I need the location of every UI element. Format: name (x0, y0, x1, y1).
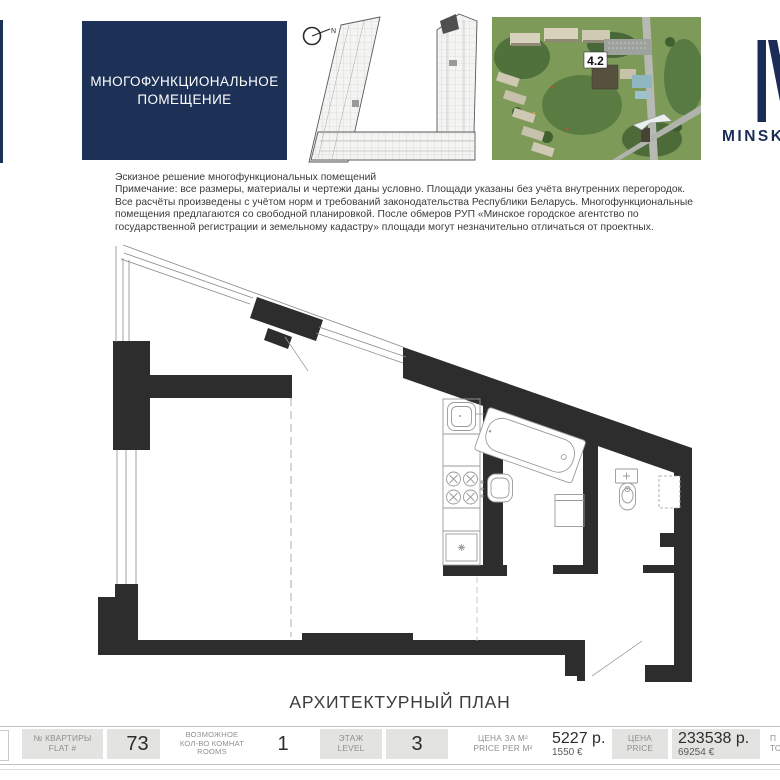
kitchen-fixtures (443, 399, 484, 565)
disclaimer-notes: Эскизное решение многофункциональных пом… (115, 172, 680, 234)
aerial-site-view: 4.2 (492, 17, 701, 160)
premises-title-line2: ПОМЕЩЕНИЕ (137, 91, 231, 109)
minsk-world-logo-icon (740, 20, 780, 130)
left-clipped-cell (0, 730, 9, 761)
rooms-count: 1 (277, 733, 288, 756)
floor-plan-drawing (90, 240, 710, 690)
notes-line: Примечание: все размеры, материалы и чер… (115, 184, 680, 196)
site-badge: 4.2 (584, 52, 607, 68)
rooms-label-en: ROOMS (197, 748, 227, 757)
price-label-en: PRICE (627, 744, 653, 754)
window-lines (116, 245, 406, 584)
toilet (616, 469, 638, 510)
stove-burners (447, 472, 478, 504)
flat-number-value: 73 (107, 729, 168, 759)
price-per-m2-eur: 1550 € (552, 747, 583, 759)
premises-title-box: МНОГОФУНКЦИОНАЛЬНОЕ ПОМЕЩЕНИЕ (82, 21, 287, 160)
flat-number: 73 (126, 733, 148, 756)
site-badge-label: 4.2 (587, 54, 604, 68)
walls (98, 297, 692, 682)
shaft-duct (659, 476, 680, 508)
level-label-en: LEVEL (338, 744, 365, 754)
right-clipped-label2: ТО (770, 744, 780, 754)
level-value: 3 (386, 729, 448, 759)
washing-machine (555, 495, 584, 527)
price-value: 233538 р. 69254 € (672, 729, 760, 759)
rooms-value: 1 (263, 729, 303, 759)
flat-number-label-en: FLAT # (49, 744, 77, 754)
price-per-m2-label: ЦЕНА ЗА М² PRICE PER M² (457, 729, 549, 759)
price-byn: 233538 р. (678, 730, 749, 747)
notes-line: Эскизное решение многофункциональных пом… (115, 172, 680, 184)
building-key-plan: N (298, 12, 488, 167)
flat-number-label: № КВАРТИРЫ FLAT # (22, 729, 103, 759)
price-eur: 69254 € (678, 747, 714, 759)
footer-bar-shadow-line (0, 769, 780, 770)
minsk-world-logo-text: MINSK (722, 128, 780, 146)
footer-bar-bottom-border (0, 764, 780, 765)
rooms-label: ВОЗМОЖНОЕ КОЛ-ВО КОМНАТ ROOMS (160, 729, 264, 759)
price-per-m2-value: 5227 р. 1550 € (552, 729, 610, 759)
notes-line: Все расчёты произведены с учётом норм и … (115, 197, 680, 209)
north-label: N (331, 28, 336, 35)
notes-line: государственной регистрации и земельному… (115, 222, 680, 234)
price-per-m2-label-en: PRICE PER M² (473, 744, 532, 754)
notes-line: помещения предлагаются со свободной план… (115, 209, 680, 221)
price-per-m2-byn: 5227 р. (552, 730, 605, 747)
left-edge-fragment (0, 20, 3, 163)
footer-bar-top-border (0, 726, 780, 727)
level-number: 3 (411, 733, 422, 756)
plan-sheet: МНОГОФУНКЦИОНАЛЬНОЕ ПОМЕЩЕНИЕ N (0, 0, 780, 780)
plan-title: АРХИТЕКТУРНЫЙ ПЛАН (90, 692, 710, 713)
price-label: ЦЕНА PRICE (612, 729, 668, 759)
right-clipped-cell: П ТО (770, 729, 780, 759)
premises-title-line1: МНОГОФУНКЦИОНАЛЬНОЕ (90, 73, 278, 91)
north-icon: N (304, 28, 337, 45)
level-label: ЭТАЖ LEVEL (320, 729, 382, 759)
